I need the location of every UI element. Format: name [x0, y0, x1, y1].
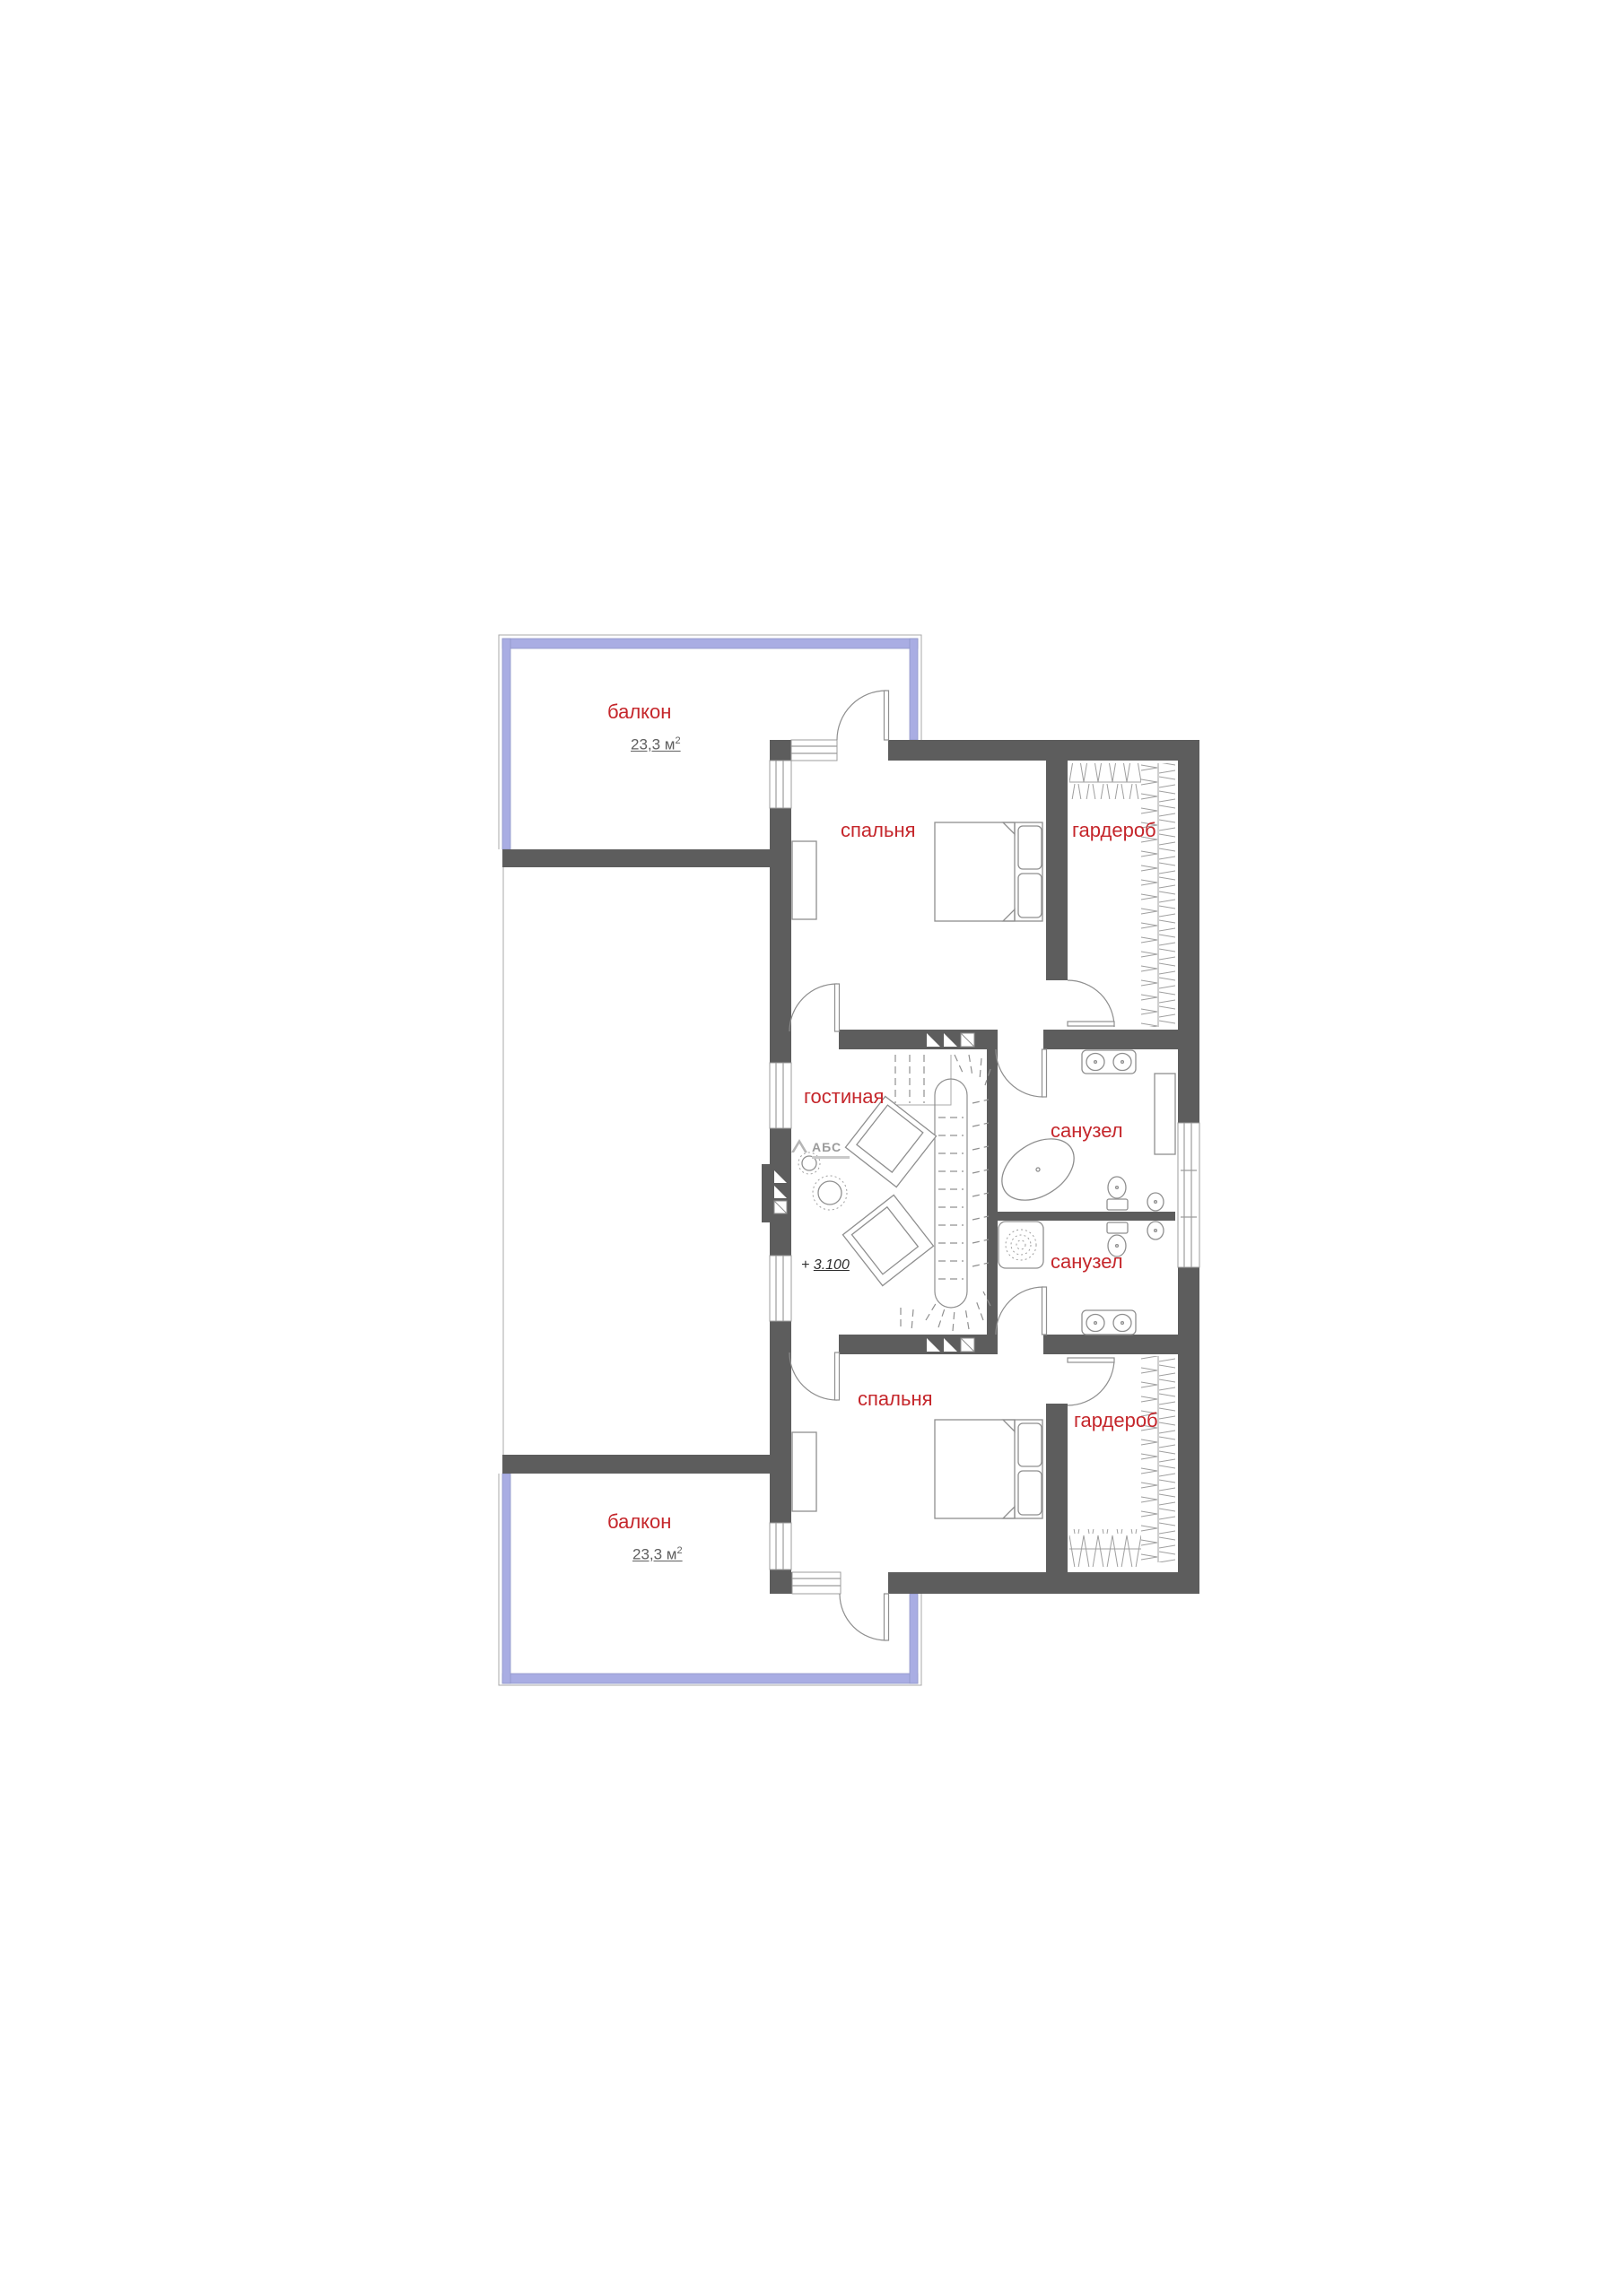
stair-handrail	[935, 1079, 967, 1308]
door-bedroom-top-entry	[789, 984, 840, 1031]
window-living-west-upper	[770, 1063, 791, 1128]
bidet-top	[1147, 1193, 1164, 1211]
dresser-bedroom-bottom	[792, 1432, 816, 1511]
sink-counter-bottom	[1082, 1310, 1136, 1335]
balcony-bottom-railing	[499, 1474, 921, 1685]
label-bedroom-bottom: спальня	[858, 1389, 933, 1409]
exterior-walls	[502, 740, 1199, 1594]
sink-counter-top	[1082, 1050, 1136, 1074]
floor-plan-drawing	[0, 0, 1622, 2296]
label-bedroom-top: спальня	[841, 821, 916, 840]
label-balcony-top: балкон	[607, 702, 671, 722]
studio-logo-tagline	[812, 1156, 850, 1159]
window-bedroom-top-west	[770, 761, 791, 808]
bed-top	[935, 822, 1042, 921]
wardrobe-bottom-hangers	[1069, 1356, 1175, 1567]
door-bath-bottom	[996, 1287, 1047, 1335]
area-balcony-top: 23,3 м2	[631, 736, 681, 752]
door-bedroom-bottom-balcony	[840, 1594, 889, 1640]
bidet-bottom	[1147, 1222, 1164, 1239]
door-wardrobe-top	[1068, 980, 1114, 1027]
plant-large	[813, 1176, 847, 1210]
label-bath-bottom: санузел	[1051, 1252, 1123, 1272]
dresser-bedroom-top	[792, 841, 816, 919]
door-bath-top	[996, 1049, 1047, 1097]
vent-duct-row-bottom	[927, 1338, 974, 1352]
window-bedroom-bottom-south	[792, 1572, 841, 1594]
window-bath-east	[1178, 1123, 1199, 1267]
balcony-top-railing	[499, 635, 921, 849]
label-living-room: гостиная	[804, 1087, 884, 1107]
window-bedroom-bottom-west	[770, 1523, 791, 1570]
label-bath-top: санузел	[1051, 1121, 1123, 1141]
armchair-1	[845, 1096, 936, 1187]
vent-duct-chimney	[774, 1170, 787, 1213]
door-bedroom-top-balcony	[837, 691, 889, 740]
elevation-mark: + 3.100	[801, 1257, 850, 1274]
studio-logo-icon	[791, 1139, 807, 1152]
window-living-west-lower	[770, 1256, 791, 1321]
bed-bottom	[935, 1420, 1042, 1518]
label-wardrobe-top: гардероб	[1072, 821, 1156, 840]
label-wardrobe-bottom: гардероб	[1074, 1411, 1158, 1431]
shower-tray	[998, 1222, 1043, 1268]
vent-ducts	[774, 1033, 974, 1352]
staircase	[894, 1055, 990, 1331]
toilet-top	[1107, 1177, 1128, 1210]
door-wardrobe-bottom	[1068, 1358, 1114, 1405]
armchair-2	[842, 1195, 933, 1285]
bath-cabinet	[1155, 1074, 1175, 1154]
window-bedroom-top-north	[791, 740, 837, 761]
studio-logo: АБС	[812, 1140, 850, 1159]
floor-plan-sheet: балкон 23,3 м2 спальня гардероб гостиная…	[0, 0, 1622, 2296]
vent-duct-row-top	[927, 1033, 974, 1047]
door-bedroom-bottom-entry	[789, 1352, 840, 1400]
area-balcony-bottom: 23,3 м2	[632, 1546, 683, 1562]
wardrobe-top-hangers	[1069, 763, 1175, 1027]
label-balcony-bottom: балкон	[607, 1512, 671, 1532]
